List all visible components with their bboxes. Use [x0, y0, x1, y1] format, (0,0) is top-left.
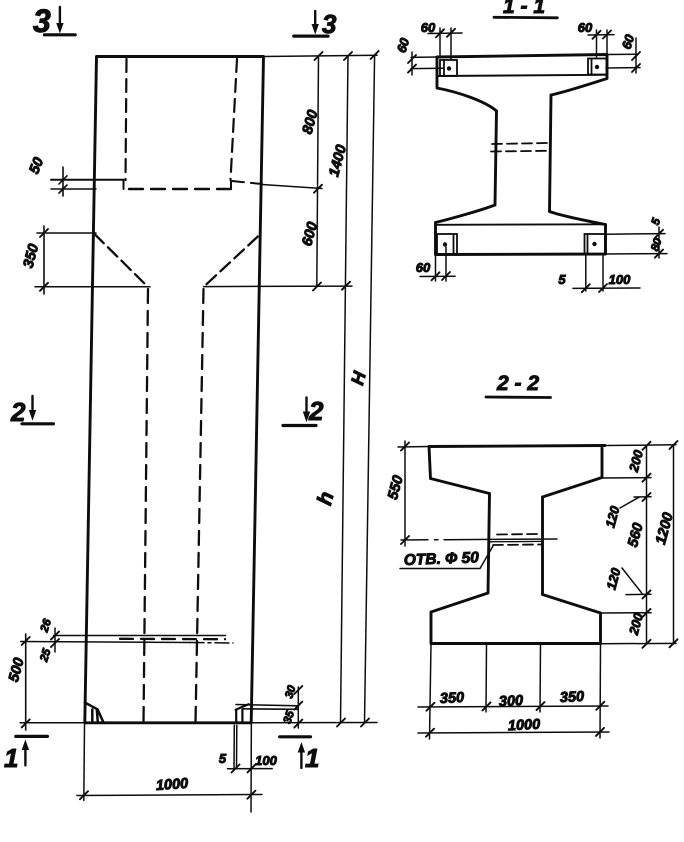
svg-text:60: 60: [619, 32, 638, 51]
svg-text:350: 350: [440, 690, 465, 707]
svg-text:3: 3: [322, 9, 337, 39]
svg-text:26: 26: [38, 617, 54, 634]
svg-text:ОТВ. Ф 50: ОТВ. Ф 50: [404, 549, 480, 569]
svg-text:25: 25: [38, 647, 54, 664]
svg-text:1: 1: [4, 743, 18, 773]
svg-text:50: 50: [26, 155, 47, 176]
svg-text:600: 600: [299, 220, 321, 248]
svg-text:30: 30: [283, 684, 299, 700]
svg-text:300: 300: [499, 693, 524, 710]
svg-text:1: 1: [305, 743, 319, 773]
svg-text:120: 120: [603, 566, 623, 592]
svg-text:60: 60: [416, 260, 431, 275]
svg-text:60: 60: [421, 20, 436, 35]
svg-text:2: 2: [10, 397, 26, 427]
svg-text:560: 560: [625, 521, 647, 549]
svg-text:2 - 2: 2 - 2: [496, 372, 539, 395]
svg-text:2: 2: [308, 396, 324, 426]
svg-text:60: 60: [578, 20, 593, 35]
svg-text:1000: 1000: [508, 717, 541, 735]
svg-text:1 - 1: 1 - 1: [503, 0, 545, 18]
svg-text:200: 200: [626, 611, 647, 638]
svg-text:60: 60: [394, 35, 413, 54]
svg-text:500: 500: [6, 656, 28, 684]
svg-text:550: 550: [385, 474, 407, 502]
svg-text:3: 3: [33, 3, 51, 39]
svg-text:350: 350: [21, 242, 43, 270]
svg-text:1000: 1000: [155, 776, 188, 794]
svg-text:100: 100: [255, 753, 277, 768]
svg-text:5: 5: [219, 751, 227, 766]
svg-text:350: 350: [560, 689, 585, 706]
svg-text:H: H: [347, 368, 370, 387]
svg-text:100: 100: [609, 272, 631, 287]
svg-text:200: 200: [626, 448, 647, 475]
svg-text:5: 5: [558, 272, 566, 287]
svg-text:5: 5: [650, 216, 664, 226]
svg-text:h: h: [313, 489, 339, 507]
